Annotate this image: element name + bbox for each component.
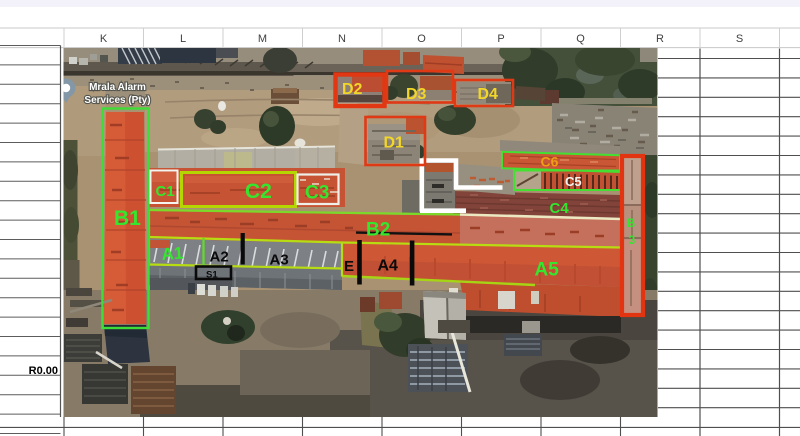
svg-text:A1: A1	[161, 244, 184, 264]
svg-text:B: B	[627, 216, 636, 230]
svg-text:A5: A5	[535, 260, 560, 281]
svg-text:3: 3	[629, 233, 636, 247]
svg-text:P: P	[497, 33, 504, 45]
svg-text:Q: Q	[576, 33, 585, 45]
svg-text:B2: B2	[366, 220, 390, 241]
svg-text:C2: C2	[245, 180, 272, 203]
svg-text:M: M	[258, 33, 267, 45]
svg-text:C1: C1	[156, 183, 175, 200]
svg-text:S1: S1	[206, 270, 218, 281]
svg-text:A3: A3	[270, 252, 289, 269]
svg-text:S: S	[736, 33, 743, 45]
svg-text:C6: C6	[541, 154, 559, 170]
svg-text:R: R	[656, 33, 664, 45]
svg-text:D1: D1	[384, 135, 405, 152]
svg-text:K: K	[100, 33, 108, 45]
svg-text:D3: D3	[406, 86, 427, 103]
svg-text:Mrala Alarm: Mrala Alarm	[89, 82, 146, 93]
svg-text:L: L	[180, 33, 186, 45]
svg-text:C5: C5	[565, 174, 582, 189]
svg-text:O: O	[417, 33, 426, 45]
svg-text:C3: C3	[305, 183, 329, 204]
svg-text:R0.00: R0.00	[29, 365, 58, 377]
svg-text:A2: A2	[210, 249, 229, 266]
svg-text:E: E	[344, 258, 354, 275]
svg-text:B1: B1	[114, 207, 141, 230]
svg-text:C4: C4	[550, 200, 570, 217]
svg-text:N: N	[338, 33, 346, 45]
svg-text:A4: A4	[378, 258, 399, 275]
svg-text:D4: D4	[478, 86, 499, 103]
svg-text:D2: D2	[342, 81, 363, 98]
svg-text:Services (Pty): Services (Pty)	[84, 95, 150, 106]
